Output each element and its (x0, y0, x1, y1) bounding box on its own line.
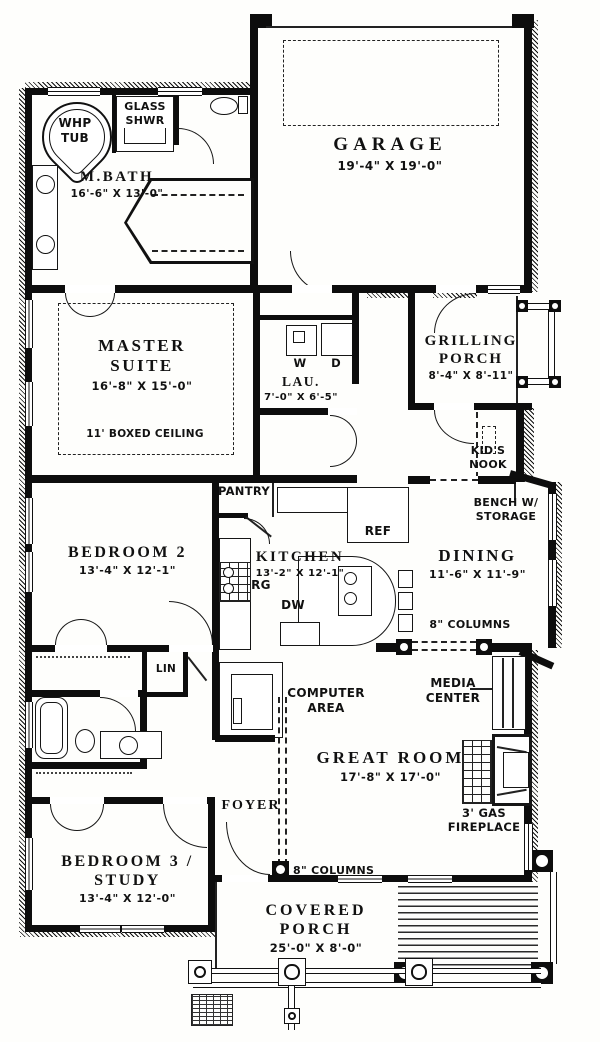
door-opening (65, 285, 115, 293)
wall (524, 20, 532, 292)
room-dims: 8'-4" X 8'-11" (416, 370, 526, 382)
door-opening (163, 797, 207, 804)
deck-steps (398, 886, 538, 966)
window (25, 300, 33, 348)
column (476, 639, 492, 655)
window (80, 925, 120, 933)
toilet (75, 729, 95, 753)
door-arc (81, 619, 107, 645)
room-garage: GARAGE 19'-4" X 19'-0" (300, 134, 480, 173)
washer-label: W (292, 356, 308, 370)
floor-plan: WHP TUB GLASS SHWR M.BATH 16'-6" X 13'-0… (0, 0, 600, 1042)
column (516, 300, 528, 312)
room-dining: DINING 11'-6" X 11'-9" (420, 546, 535, 581)
pantry-label: PANTRY (214, 484, 274, 498)
computer-area-label: COMPUTER AREA (286, 686, 366, 716)
door-opening (436, 285, 476, 293)
wall (212, 652, 219, 740)
closet-shelf-dashed (152, 250, 244, 252)
room-dims: 13'-4" X 12'-1" (50, 564, 205, 577)
door-arc (100, 697, 136, 731)
window (25, 552, 33, 592)
opening-dashed (412, 641, 476, 643)
window (158, 87, 202, 96)
window (548, 560, 557, 606)
threshold (367, 292, 409, 298)
room-dims: 17'-8" X 17'-0" (308, 770, 473, 784)
exterior-hatch (524, 408, 534, 482)
sink (119, 736, 138, 755)
wall (260, 315, 355, 320)
wall (516, 408, 524, 482)
kids-nook-label: KID'S NOOK (460, 444, 516, 472)
door-opening (434, 403, 474, 410)
closet-door-leaf (187, 656, 207, 681)
door-arc (434, 293, 476, 333)
porch-column (278, 958, 306, 986)
bench-storage-label: BENCH W/ STORAGE (466, 496, 546, 524)
wall (212, 513, 248, 518)
door-arc (55, 619, 81, 645)
columns-label: 8" COLUMNS (293, 864, 381, 878)
fireplace-label: 3' GAS FIREPLACE (442, 806, 526, 835)
door-arc (178, 128, 214, 164)
door-arc (77, 804, 104, 831)
door-opening (292, 285, 332, 293)
glass-shower-label: GLASS SHWR (117, 100, 173, 128)
room-dims: 13'-2" X 12'-1" (248, 568, 352, 579)
window (25, 382, 33, 426)
wall (212, 475, 357, 483)
window (25, 498, 33, 544)
computer-monitor (233, 698, 242, 724)
window (48, 87, 100, 96)
room-name: LAU. (262, 374, 340, 390)
dishwasher-label: DW (278, 598, 308, 613)
room-laundry: LAU. 7'-0" X 6'-5" (262, 374, 340, 403)
wall (25, 762, 147, 769)
column (549, 300, 561, 312)
floor-threshold (36, 656, 130, 658)
dishwasher (280, 622, 320, 646)
room-name: COVERED PORCH (246, 901, 386, 939)
washer-detail (293, 331, 305, 343)
window (25, 702, 33, 748)
railing (193, 968, 541, 974)
room-name: GREAT ROOM (308, 748, 473, 768)
columns-label: 8" COLUMNS (428, 618, 512, 632)
door-arc (163, 804, 207, 848)
brick-stoop (191, 994, 233, 1026)
room-dims: 25'-0" X 8'-0" (246, 941, 386, 955)
room-name: FOYER (220, 798, 282, 815)
media-center-unit (492, 656, 526, 730)
room-name: BEDROOM 3 / STUDY (45, 852, 210, 890)
room-foyer: FOYER (220, 798, 282, 815)
whp-tub-label: WHP TUB (44, 116, 106, 146)
refrigerator-label: REF (350, 524, 406, 539)
wall (142, 692, 188, 697)
ceiling-dashed-line (285, 697, 289, 865)
garage-door-line (266, 26, 518, 28)
range-label: RG (248, 578, 274, 593)
media-shelf-line (512, 658, 514, 728)
door-arc (50, 804, 77, 831)
counter (277, 487, 349, 513)
room-kitchen: KITCHEN 13'-2" X 12'-1" (248, 548, 352, 579)
room-dims: 13'-4" X 12'-0" (45, 892, 210, 905)
front-door-arc (226, 822, 270, 875)
garage-ceiling-dashed (283, 40, 499, 126)
porch-column (284, 1008, 300, 1024)
window (25, 838, 33, 890)
room-grilling-porch: GRILLING PORCH 8'-4" X 8'-11" (416, 332, 526, 382)
media-center-label: MEDIA CENTER (422, 676, 484, 706)
door-opening (222, 875, 268, 882)
door-arc (169, 601, 213, 645)
door-opening (169, 645, 213, 652)
opening-dashed (430, 479, 478, 481)
room-name: BEDROOM 2 (50, 543, 205, 562)
boxed-ceiling-label: 11' BOXED CEILING (80, 428, 210, 441)
burner (344, 592, 357, 605)
bar-stool (398, 614, 413, 632)
window (122, 925, 164, 933)
porch-column (188, 960, 212, 984)
column (549, 376, 561, 388)
burner (223, 583, 234, 594)
dryer (321, 323, 354, 356)
room-name: GRILLING PORCH (416, 332, 526, 368)
door-opening (100, 690, 138, 697)
room-dims: 16'-6" X 13'-0" (58, 188, 176, 200)
room-mbath: M.BATH 16'-6" X 13'-0" (58, 168, 176, 200)
door-arc (434, 410, 474, 444)
room-dims: 11'-6" X 11'-9" (420, 568, 535, 581)
toilet-tank (238, 96, 248, 114)
opening-dashed (412, 649, 476, 651)
room-name: GARAGE (300, 134, 480, 157)
bar-stool (398, 570, 413, 588)
wall (376, 643, 398, 652)
room-great-room: GREAT ROOM 17'-8" X 17'-0" (308, 748, 473, 784)
wall (25, 475, 215, 483)
porch-edge-line (215, 882, 217, 968)
room-name: M.BATH (58, 168, 176, 186)
room-dims: 19'-4" X 19'-0" (300, 159, 480, 173)
media-shelf-line (502, 658, 504, 728)
room-covered-porch: COVERED PORCH 25'-0" X 8'-0" (246, 901, 386, 955)
door-opening (328, 408, 357, 415)
floor-threshold (36, 772, 132, 774)
porch-column (405, 958, 433, 986)
room-bedroom2: BEDROOM 2 13'-4" X 12'-1" (50, 543, 205, 577)
column (396, 639, 412, 655)
wall (253, 292, 260, 475)
sink (36, 235, 55, 254)
door-opening (55, 645, 107, 652)
dryer-label: D (328, 356, 344, 370)
toilet (210, 97, 238, 115)
room-name: KITCHEN (248, 548, 352, 566)
bar-stool (398, 592, 413, 610)
wall (352, 292, 359, 384)
room-master: MASTER SUITE 16'-8" X 15'-0" (72, 336, 212, 393)
railing (550, 872, 557, 964)
wall (408, 292, 415, 410)
railing (548, 310, 555, 378)
door-arc (330, 441, 357, 467)
room-name: DINING (420, 546, 535, 566)
bathtub-inner (40, 702, 63, 754)
linen-label: LIN (148, 663, 184, 676)
column (531, 850, 553, 872)
wall (142, 652, 147, 697)
firebox (503, 752, 529, 788)
window (548, 494, 557, 540)
railing (193, 982, 541, 988)
ceiling-dashed-line (278, 697, 282, 865)
sink (36, 175, 55, 194)
door-arc (330, 415, 357, 441)
burner (223, 567, 234, 578)
window (488, 285, 520, 294)
room-name: MASTER SUITE (72, 336, 212, 377)
wall (215, 735, 275, 742)
room-dims: 7'-0" X 6'-5" (262, 392, 340, 403)
room-dims: 16'-8" X 15'-0" (72, 379, 212, 393)
wall (25, 925, 215, 932)
exterior-hatch (532, 20, 538, 292)
wall (212, 475, 219, 652)
door-opening (50, 797, 104, 804)
window (408, 875, 452, 883)
room-bedroom3: BEDROOM 3 / STUDY 13'-4" X 12'-0" (45, 852, 210, 905)
